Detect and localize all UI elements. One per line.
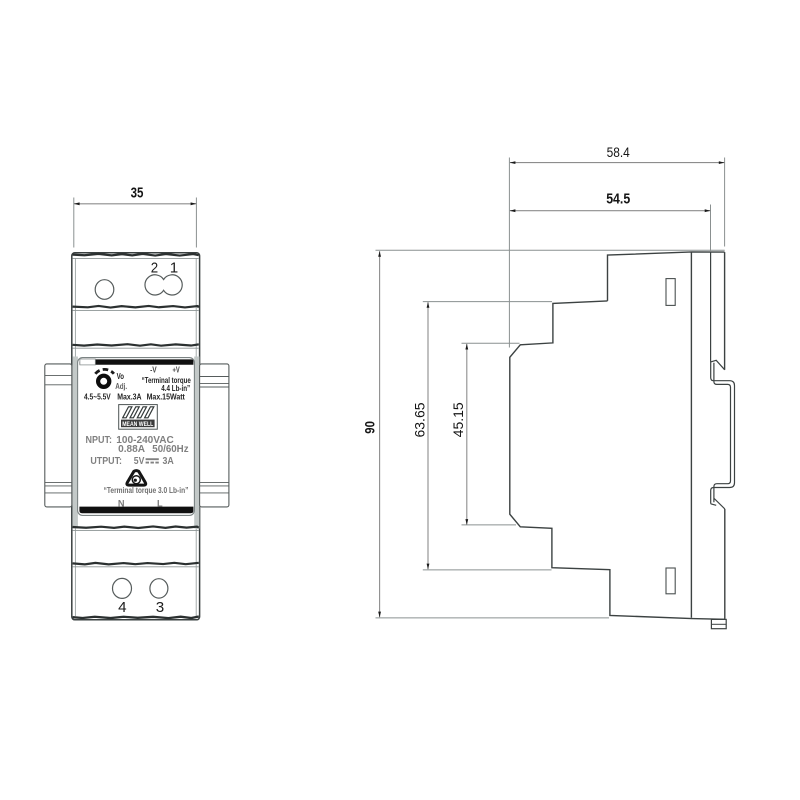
- svg-text:NPUT:: NPUT:: [86, 435, 113, 446]
- svg-text:58.4: 58.4: [607, 145, 630, 160]
- svg-text:0.88A: 0.88A: [118, 444, 145, 455]
- svg-text:MEAN WELL: MEAN WELL: [122, 422, 153, 428]
- svg-text:35: 35: [131, 185, 144, 201]
- svg-text:1: 1: [170, 260, 178, 277]
- svg-text:45.15: 45.15: [450, 402, 466, 437]
- svg-text:3: 3: [156, 599, 164, 616]
- svg-text:Max.15Watt: Max.15Watt: [147, 392, 186, 401]
- svg-text:N: N: [118, 498, 125, 508]
- svg-text:Max.3A: Max.3A: [117, 392, 141, 401]
- svg-text:5V: 5V: [134, 456, 145, 467]
- svg-text:-V: -V: [150, 366, 157, 375]
- svg-text:Vo: Vo: [117, 371, 124, 381]
- svg-text:4: 4: [118, 599, 126, 616]
- svg-text:L: L: [157, 498, 163, 508]
- svg-text:3A: 3A: [163, 456, 175, 467]
- svg-text:50/60Hz: 50/60Hz: [152, 444, 188, 455]
- svg-text:4.5~5.5V: 4.5~5.5V: [84, 392, 111, 401]
- svg-text:2: 2: [151, 260, 158, 277]
- svg-text:63.65: 63.65: [411, 402, 427, 437]
- svg-text:Adj.: Adj.: [115, 381, 127, 391]
- svg-text:“Terminal torque 3.0 Lb-in”: “Terminal torque 3.0 Lb-in”: [104, 486, 189, 495]
- svg-text:54.5: 54.5: [606, 192, 630, 208]
- svg-text:UTPUT:: UTPUT:: [90, 456, 122, 467]
- svg-text:90: 90: [363, 421, 378, 434]
- svg-text:+V: +V: [173, 366, 181, 375]
